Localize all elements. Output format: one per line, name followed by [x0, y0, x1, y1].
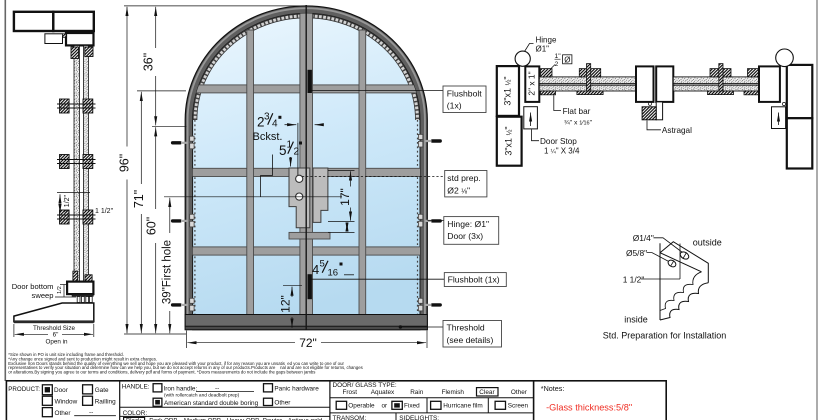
- svg-text:Open in: Open in: [45, 338, 68, 345]
- svg-text:Ø1/4": Ø1/4": [633, 233, 654, 243]
- svg-text:Screen: Screen: [508, 403, 529, 410]
- svg-text:5: 5: [279, 143, 287, 158]
- svg-text:Clear: Clear: [479, 389, 495, 396]
- svg-text:(with rollercatch and deadbolt: (with rollercatch and deadbolt prep): [164, 393, 240, 399]
- svg-text:Railling: Railling: [95, 399, 116, 406]
- svg-text:Hinge: Hinge: [536, 36, 557, 45]
- svg-text:Hinge: Ø1": Hinge: Ø1": [447, 219, 489, 229]
- svg-text:COLOR:: COLOR:: [123, 410, 148, 417]
- svg-text:Rain: Rain: [410, 389, 424, 396]
- svg-text:Bckst.: Bckst.: [253, 131, 283, 143]
- svg-text:Flat bar: Flat bar: [563, 107, 591, 116]
- svg-text:Ø1": Ø1": [536, 45, 550, 54]
- svg-text:--: --: [215, 385, 219, 392]
- svg-text:60": 60": [145, 217, 159, 235]
- svg-text:American standard double borin: American standard double boring: [164, 400, 259, 407]
- svg-text:Operable: Operable: [348, 403, 375, 410]
- svg-text:36": 36": [142, 53, 156, 71]
- svg-text:Flushbolt: Flushbolt: [447, 89, 482, 99]
- svg-text:Door Stop: Door Stop: [540, 137, 577, 146]
- svg-text:4: 4: [272, 119, 278, 130]
- svg-text:1 1/2": 1 1/2": [64, 194, 71, 213]
- svg-text:1": 1": [555, 53, 562, 60]
- svg-text:96": 96": [118, 154, 132, 172]
- svg-text:Iron handle:: Iron handle:: [164, 386, 198, 393]
- svg-text:Door (3x): Door (3x): [447, 231, 483, 241]
- svg-text:SIDELIGHTS:: SIDELIGHTS:: [399, 415, 439, 420]
- svg-text:17": 17": [338, 188, 352, 206]
- svg-text:Door: Door: [54, 387, 69, 394]
- svg-text:Aquatex: Aquatex: [371, 389, 395, 396]
- svg-text:HANDLE:: HANDLE:: [122, 383, 150, 390]
- svg-text:Flemish: Flemish: [442, 389, 465, 396]
- svg-text:1 1/2": 1 1/2": [623, 274, 645, 284]
- svg-text:DOOR/ GLASS TYPE:: DOOR/ GLASS TYPE:: [333, 382, 397, 389]
- svg-text:or: or: [382, 403, 389, 410]
- svg-text:16: 16: [328, 268, 339, 279]
- svg-text:Other: Other: [55, 410, 72, 417]
- svg-text:Threshold: Threshold: [447, 323, 485, 333]
- svg-text:std prep.: std prep.: [447, 173, 480, 183]
- svg-text:--: --: [89, 409, 93, 416]
- svg-text:2: 2: [294, 147, 300, 158]
- svg-text:Hurricane film: Hurricane film: [443, 403, 482, 410]
- svg-text:Panic hardware: Panic hardware: [274, 386, 319, 393]
- svg-text:1/2: 1/2: [57, 286, 63, 294]
- svg-text:TRANSOM:: TRANSOM:: [333, 415, 367, 420]
- svg-text:1 1/2": 1 1/2": [95, 208, 114, 215]
- svg-text:Other: Other: [274, 400, 291, 407]
- svg-text:4: 4: [312, 262, 319, 277]
- svg-text:¾" x 1⁄16": ¾" x 1⁄16": [564, 120, 593, 127]
- svg-text:-Glass thickness:5/8": -Glass thickness:5/8": [546, 402, 632, 412]
- svg-text:72": 72": [299, 336, 317, 350]
- svg-text:Ø5/8": Ø5/8": [626, 248, 647, 258]
- svg-text:2: 2: [555, 61, 559, 68]
- svg-text:Other: Other: [511, 389, 528, 396]
- svg-text:Fixed: Fixed: [404, 403, 420, 410]
- svg-text:Frost: Frost: [343, 389, 358, 396]
- svg-text:Ø: Ø: [564, 56, 570, 65]
- svg-text:Ø2 ⅛": Ø2 ⅛": [447, 185, 470, 195]
- svg-text:Flushbolt (1x): Flushbolt (1x): [448, 275, 500, 285]
- svg-text:71": 71": [132, 190, 146, 208]
- svg-text:inside: inside: [624, 314, 648, 324]
- svg-text:Astragal: Astragal: [662, 126, 692, 135]
- svg-text:Gate: Gate: [95, 387, 109, 394]
- svg-text:(1x): (1x): [447, 100, 462, 110]
- svg-text:Door bottom: Door bottom: [12, 282, 54, 291]
- svg-text:outside: outside: [693, 238, 722, 248]
- svg-text:Std. Preparation for Installat: Std. Preparation for Installation: [603, 331, 727, 341]
- svg-text:2" x 1": 2" x 1": [527, 71, 537, 95]
- svg-text:sweep: sweep: [32, 291, 54, 300]
- svg-text:39"First hole: 39"First hole: [162, 240, 174, 304]
- svg-text:*Notes:: *Notes:: [541, 384, 565, 393]
- svg-text:1 ¼" X 3/4: 1 ¼" X 3/4: [544, 147, 580, 156]
- svg-text:Window: Window: [55, 399, 78, 406]
- svg-text:12": 12": [279, 295, 293, 313]
- svg-text:or alterations.By signing you: or alterations.By signing you agree to o…: [8, 370, 315, 375]
- svg-text:PRODUCT:: PRODUCT:: [8, 386, 40, 393]
- svg-text:(see details): (see details): [447, 335, 494, 345]
